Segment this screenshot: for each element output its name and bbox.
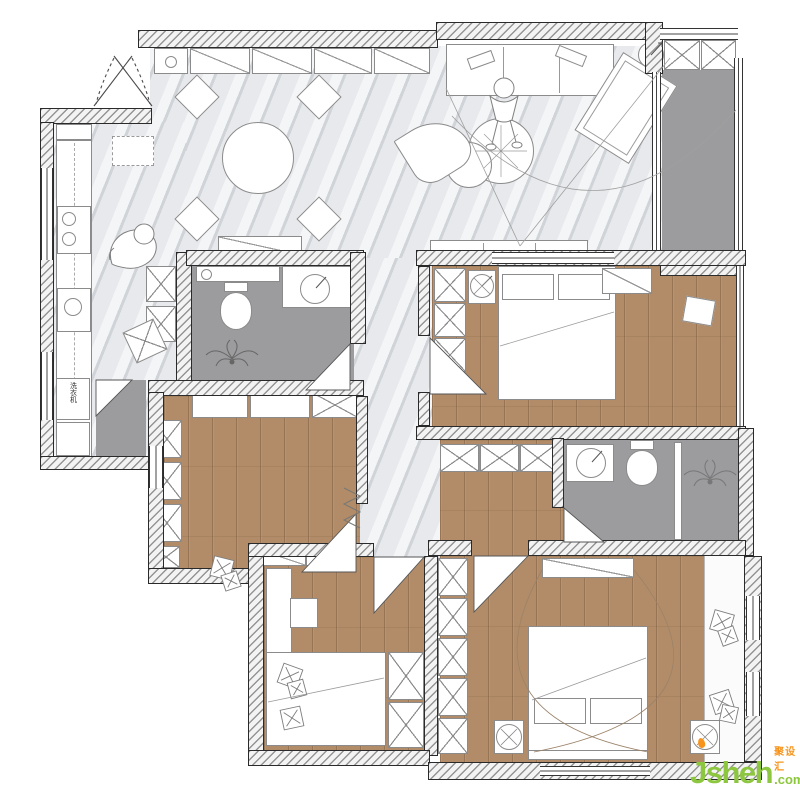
wardrobe [438, 598, 468, 636]
wardrobe [438, 678, 468, 716]
bed [528, 626, 648, 752]
dresser [602, 268, 652, 294]
side-chair [682, 296, 716, 327]
wardrobe [388, 702, 424, 748]
stove-burner [62, 232, 76, 246]
window-kitchen-low [41, 352, 53, 420]
wardrobe [438, 638, 468, 676]
stove-burner [62, 212, 76, 226]
wall-master-top-b [528, 540, 746, 556]
bed [266, 652, 386, 746]
window-kitchen [41, 168, 53, 260]
window-master-right-a [746, 596, 760, 640]
washing-machine-label: 洗衣机 [70, 382, 77, 403]
nightstand-lamp [470, 274, 494, 298]
wall-master-right [744, 556, 762, 762]
wardrobe [434, 338, 466, 372]
wall-master-left [424, 556, 438, 756]
wardrobe [438, 718, 468, 754]
wall-bath1-right [350, 252, 366, 344]
toilet-bowl [626, 450, 658, 486]
storage-cabinet [146, 266, 176, 302]
wall-bath1-top [186, 250, 364, 266]
sofa-seat-divider [503, 47, 504, 93]
watermark: Jsheh 聚设汇 .com [690, 742, 798, 786]
desk-chair [290, 598, 318, 628]
window-master-right-b [746, 672, 760, 716]
window-bed2 [149, 446, 163, 488]
headboard [528, 750, 648, 760]
window-master-bottom [540, 766, 650, 776]
wardrobe [434, 303, 466, 337]
wardrobe [434, 268, 466, 302]
laundry-cabinet [56, 422, 90, 456]
washing-machine: 洗衣机 [56, 378, 90, 420]
corridor-storage [480, 444, 519, 472]
bath-shelf [196, 266, 280, 282]
wall-top-right [436, 22, 648, 40]
bed-pillow [590, 698, 642, 724]
wall-bath1-left [176, 252, 192, 384]
fridge [112, 136, 154, 166]
wall-bed2-right [356, 396, 368, 504]
kitchen-top-cabinet [56, 124, 92, 140]
entry-door-swing [94, 56, 152, 106]
kitchen-sink-basin [64, 298, 82, 316]
entry-cabinet [314, 48, 372, 74]
vanity-sink [300, 274, 330, 304]
floor-laundry-nook [96, 380, 146, 458]
wall-bed1-bottom [416, 426, 746, 440]
wall-right-mid [738, 428, 754, 556]
floor-balcony [662, 70, 736, 266]
toilet-tank [630, 440, 654, 450]
desk-counter [266, 568, 292, 654]
shower-glass [674, 442, 682, 540]
wall-master-top-a [428, 540, 472, 556]
wall-kitchen-top [40, 108, 152, 124]
entry-cabinet [190, 48, 250, 74]
corridor-storage [520, 444, 556, 472]
wall-bath2-left [552, 438, 564, 508]
wall-bed3-top-a [248, 543, 352, 557]
watermark-side: 聚设汇 .com [774, 743, 800, 786]
window-balcony-glass [652, 72, 661, 262]
wall-bed1-left-b [418, 392, 430, 426]
balcony-cabinet [664, 40, 700, 70]
dining-table [222, 122, 294, 194]
wardrobe [388, 652, 424, 700]
watermark-brand: Jsheh [690, 760, 772, 786]
window-bed1-right [736, 266, 744, 428]
watermark-cjk: 聚设汇 [774, 743, 800, 773]
wall-bed3-top-b [352, 543, 374, 557]
wall-bed3-bottom [248, 750, 430, 766]
bed-pillow [502, 274, 554, 300]
window-balcony-right [734, 58, 743, 264]
toilet-bowl [220, 292, 252, 330]
toilet-tank [224, 282, 248, 292]
sofa [446, 44, 614, 96]
wall-bed2-bottom [148, 568, 260, 584]
wardrobe [438, 558, 468, 596]
bath-shelf-basin [201, 269, 212, 280]
entry-cabinet [252, 48, 312, 74]
tv-shelf [542, 558, 634, 578]
vanity-sink [576, 448, 606, 478]
corridor-storage [440, 444, 479, 472]
hood-circle [165, 56, 177, 68]
bed-pillow [534, 698, 586, 724]
entry-cabinet [374, 48, 430, 74]
window-bed1-head [492, 252, 614, 264]
window-balcony-top [660, 28, 738, 40]
watermark-tld: .com [774, 773, 800, 786]
wall-bed3-left [248, 543, 264, 752]
wall-laundry-bottom [40, 456, 150, 470]
nightstand-lamp [496, 724, 522, 750]
entry-cabinet-hood [154, 48, 188, 74]
wall-top-left [138, 30, 438, 48]
wall-bed2-top [148, 380, 364, 396]
balcony-cabinet [701, 40, 736, 70]
apartment-floor-plan: 洗衣机 [0, 0, 800, 787]
wall-bed1-left-a [418, 266, 430, 336]
